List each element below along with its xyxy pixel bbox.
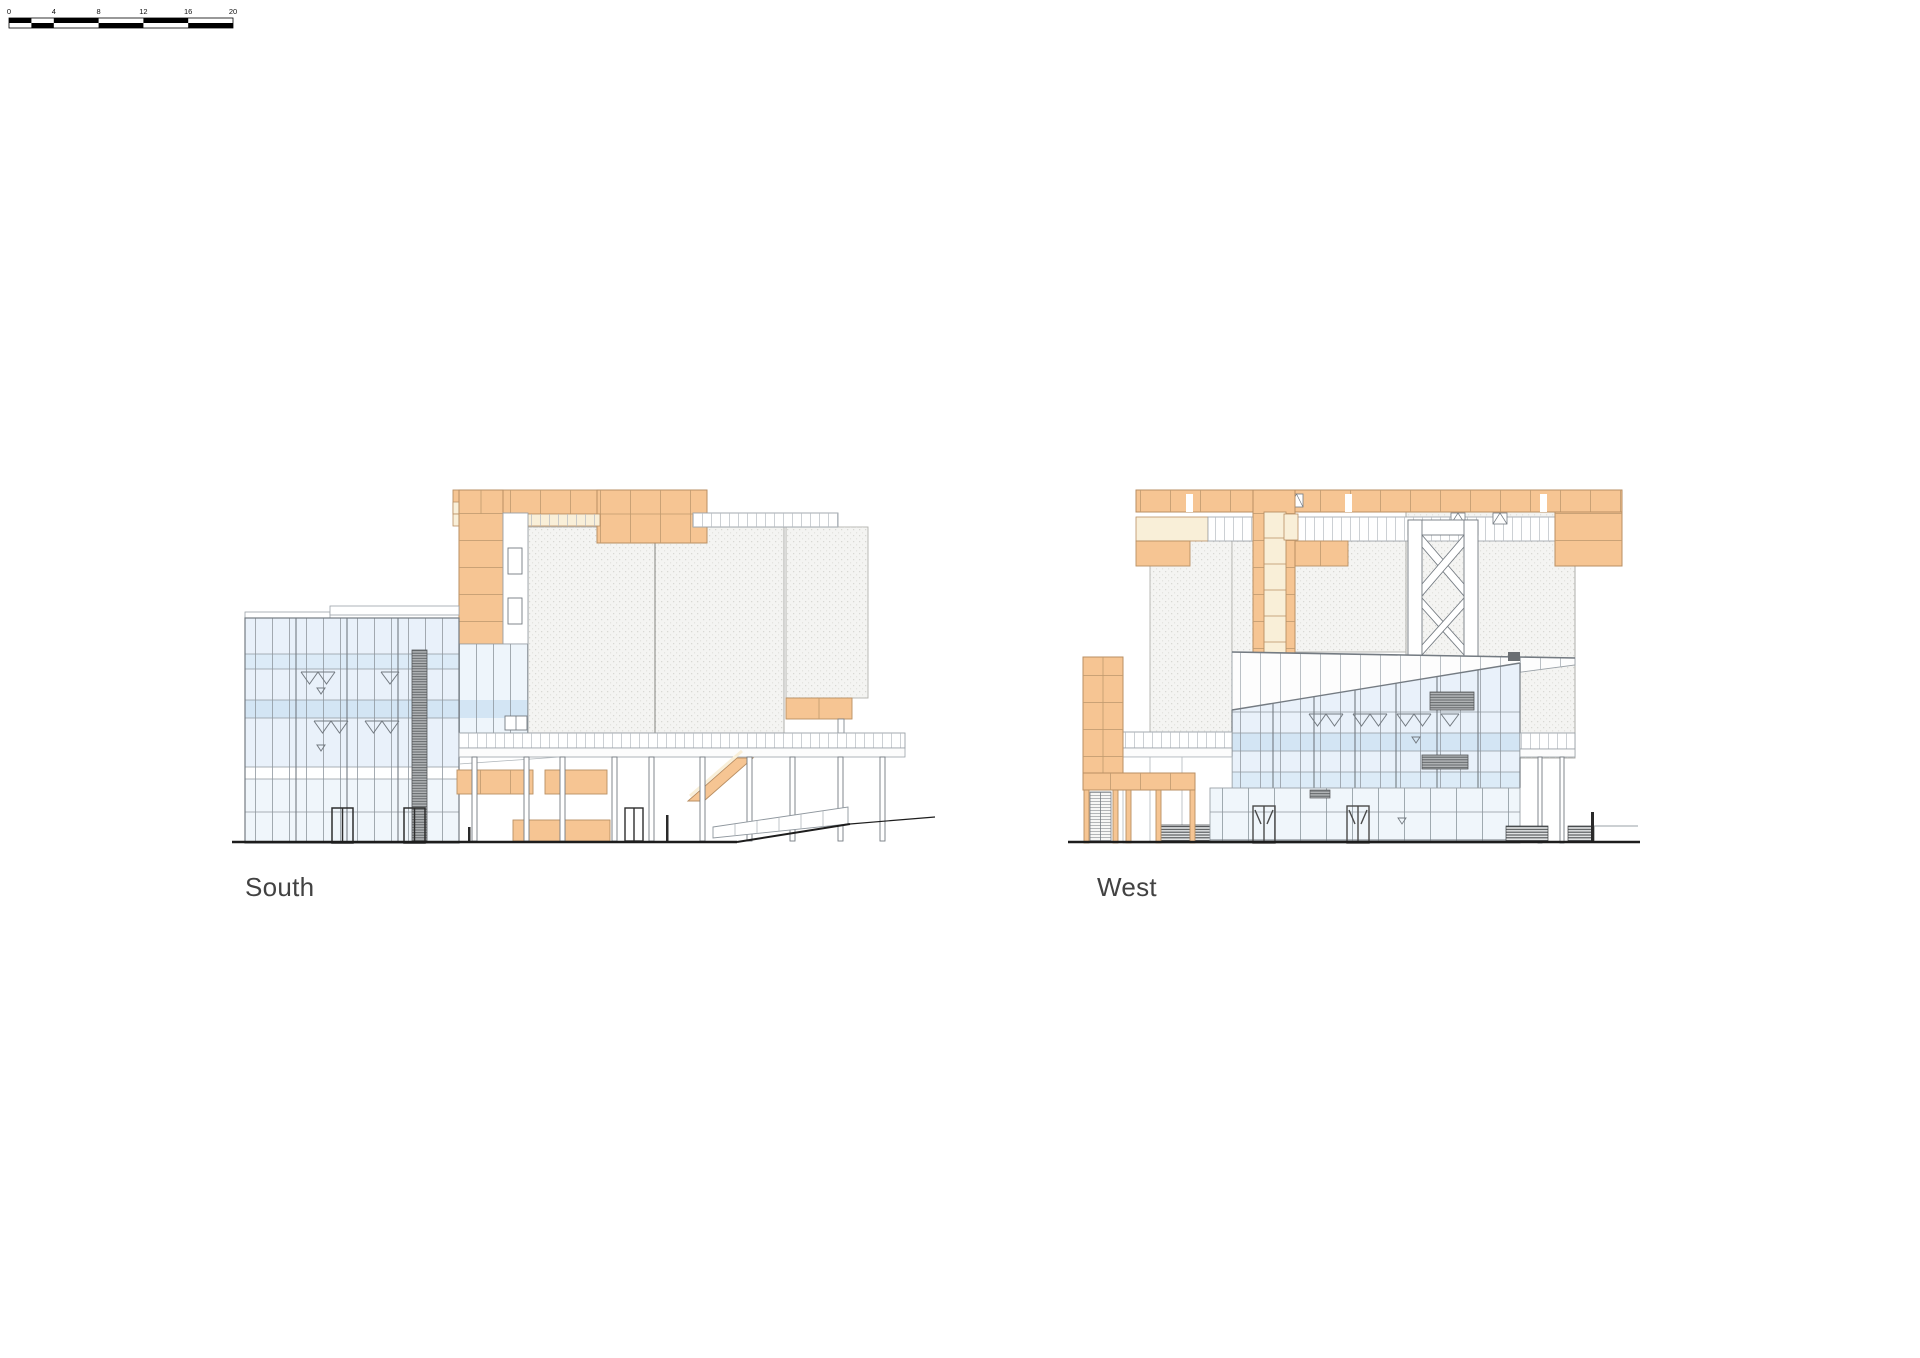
scale-bar-segments bbox=[9, 18, 233, 28]
south-stair-tower bbox=[459, 490, 528, 644]
scale-bar-tick-label: 16 bbox=[184, 7, 192, 16]
south-ground-floor bbox=[457, 751, 885, 841]
south-ramp-railing bbox=[713, 807, 848, 838]
scale-bar-tick-label: 12 bbox=[139, 7, 147, 16]
west-stair-tower bbox=[1253, 490, 1298, 660]
scale-bar-tick-label: 4 bbox=[52, 7, 56, 16]
south-escalator bbox=[688, 758, 753, 801]
west-elevation-label: West bbox=[1097, 872, 1157, 903]
west-storefront bbox=[1210, 788, 1520, 843]
scale-bar-tick-label: 8 bbox=[97, 7, 101, 16]
scale-bar-tick-label: 20 bbox=[229, 7, 237, 16]
south-glass-facade bbox=[245, 606, 459, 843]
south-elevation-drawing bbox=[232, 490, 935, 843]
south-right-curtain bbox=[459, 644, 528, 733]
elevations-canvas bbox=[0, 0, 1920, 1358]
south-door bbox=[625, 808, 643, 841]
west-right-bay bbox=[1506, 733, 1638, 843]
scale-bar-tick-label: 0 bbox=[7, 7, 11, 16]
architectural-drawing-sheet: South West 0 4 8 12 16 20 bbox=[0, 0, 1920, 1358]
scale-bar: 0 4 8 12 16 20 bbox=[0, 0, 250, 40]
west-elevation-drawing bbox=[1068, 490, 1640, 843]
south-elevation-label: South bbox=[245, 872, 314, 903]
south-orange-bracket bbox=[786, 698, 852, 733]
